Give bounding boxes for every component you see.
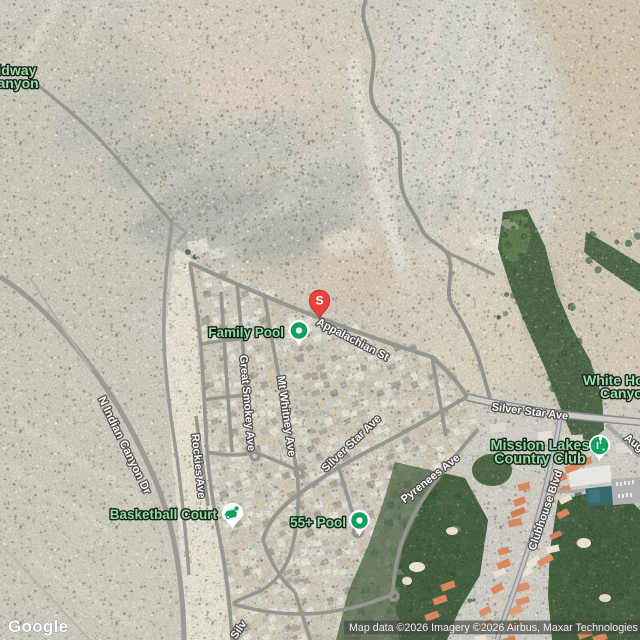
svg-text:S: S xyxy=(315,294,323,308)
svg-text:Family Pool: Family Pool xyxy=(208,325,284,340)
svg-text:Basketball Court: Basketball Court xyxy=(110,507,218,522)
svg-text:55+ Pool: 55+ Pool xyxy=(290,515,346,530)
svg-text:Map data ©2026 Imagery ©2026 A: Map data ©2026 Imagery ©2026 Airbus, Max… xyxy=(349,622,638,634)
svg-text:Canyon: Canyon xyxy=(600,385,640,401)
svg-text:Canyon: Canyon xyxy=(0,75,39,91)
svg-text:Country Club: Country Club xyxy=(494,452,586,468)
svg-text:Google: Google xyxy=(8,617,68,636)
